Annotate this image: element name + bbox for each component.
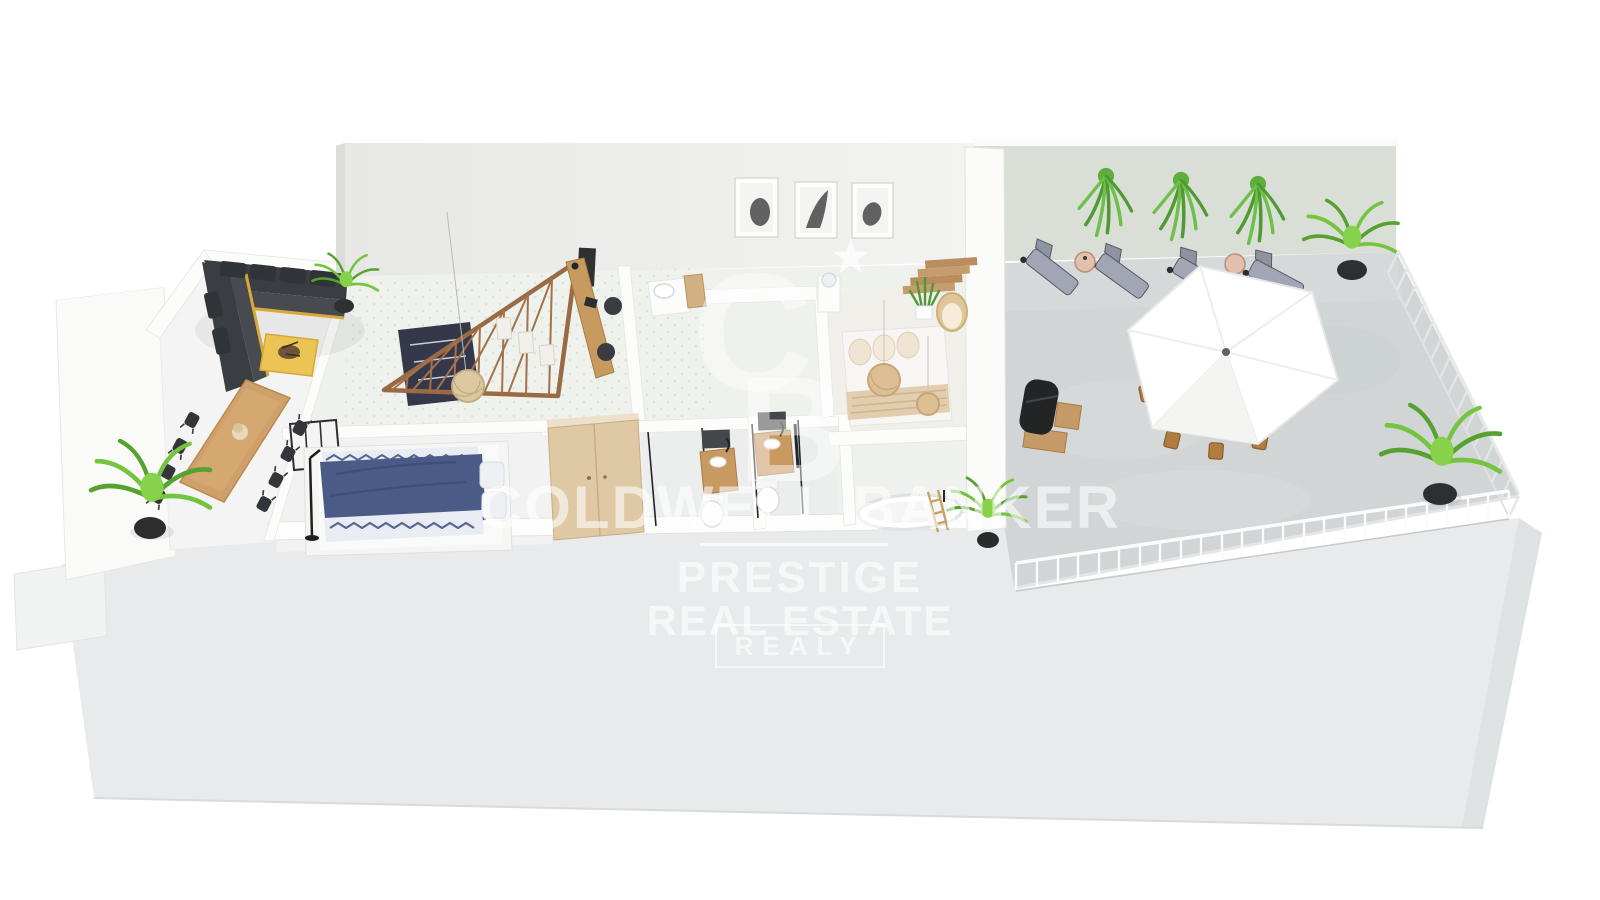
sofa-cushion — [279, 267, 306, 285]
parasol-pole-top — [1222, 348, 1230, 356]
wall-frame — [852, 183, 893, 238]
decor-bowl — [278, 345, 300, 359]
wood-cabinet — [684, 274, 706, 308]
rattan-pendant-sphere — [917, 393, 939, 415]
wardrobe-handle — [587, 476, 591, 480]
pillow — [849, 339, 871, 365]
wall-frame — [795, 182, 837, 238]
desk-lamp — [572, 263, 579, 270]
bathroom-vanity — [700, 448, 738, 494]
base-platform — [14, 518, 1542, 828]
back-wall-right-cap — [973, 138, 1398, 146]
wardrobe-front — [548, 420, 644, 540]
sink — [710, 457, 726, 467]
wood-chair — [1208, 443, 1223, 460]
wardrobe — [546, 413, 644, 540]
floor-plan-scene — [0, 0, 1600, 900]
washbasin — [654, 284, 674, 298]
egg-chair-cushion — [942, 303, 962, 329]
office-chair — [597, 343, 615, 361]
toilet — [701, 501, 723, 527]
glass-sphere-decor — [822, 273, 836, 287]
sofa-cushion — [219, 261, 246, 279]
wardrobe-handle — [603, 475, 607, 479]
pillow — [482, 492, 506, 518]
wall-right-tall — [965, 147, 1006, 532]
plant-pot — [134, 517, 166, 539]
sofa-cushion — [249, 264, 276, 282]
bathroom-vanity — [754, 430, 794, 476]
toilet — [757, 487, 779, 513]
floor-lamp-base — [305, 535, 319, 541]
office-chair — [604, 297, 622, 315]
wood-chair — [1163, 431, 1180, 450]
plant-pot — [977, 532, 999, 548]
plant-pot — [916, 306, 932, 319]
wall-frame — [735, 178, 778, 237]
yellow-coffee-table — [260, 334, 318, 376]
platform-front-face — [62, 518, 1542, 828]
floor-mottle — [1090, 470, 1310, 530]
pillow — [897, 332, 919, 358]
table-centerpiece — [233, 423, 243, 433]
floor-plan-render: C B ★ COLDWELL BANKER PRESTIGE REAL ESTA… — [0, 0, 1600, 900]
plant-pot — [1337, 260, 1367, 280]
plant-pot — [1423, 483, 1457, 505]
pillow — [480, 462, 504, 488]
sink — [764, 439, 780, 449]
mosaic-side-table — [1225, 254, 1245, 274]
plant-pot — [334, 299, 354, 313]
mosaic-side-table — [1075, 252, 1095, 272]
gallery-frames — [735, 178, 893, 238]
